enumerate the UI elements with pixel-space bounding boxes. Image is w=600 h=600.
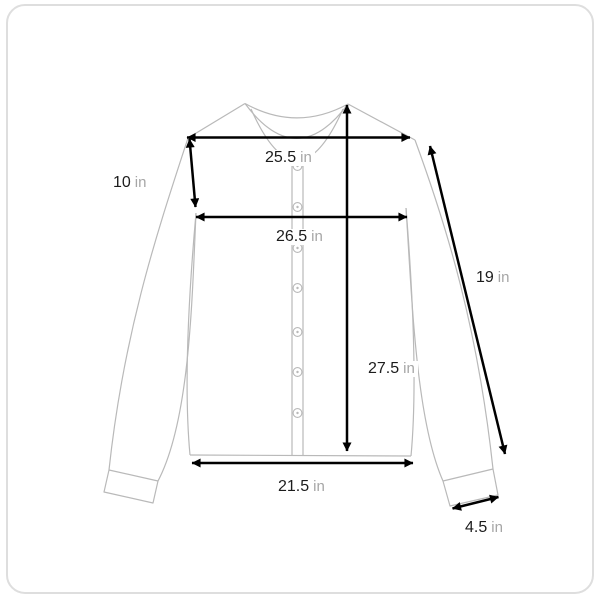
measurement-unit: in: [491, 519, 503, 536]
measurement-unit: in: [313, 478, 325, 495]
measurement-label-sleeve-length: 19in: [473, 270, 512, 286]
arrow-cuff-width: [453, 497, 499, 509]
measurement-unit: in: [311, 228, 323, 245]
garment-diagram: [0, 0, 600, 600]
button-dot: [296, 331, 298, 333]
back-neck-curve: [245, 104, 348, 118]
button-dot: [296, 247, 298, 249]
measurement-label-shoulder-width: 25.5in: [262, 150, 315, 166]
button-dot: [296, 412, 298, 414]
measurement-value: 21.5: [278, 478, 309, 495]
measurement-label-cuff-width: 4.5in: [462, 520, 506, 536]
left-cuff-band: [104, 470, 158, 503]
measurement-value: 26.5: [276, 228, 307, 245]
measurement-unit: in: [498, 269, 510, 286]
measurement-diagram-page: 25.5in 10in 26.5in 19in 27.5in 21.5in 4.…: [0, 0, 600, 600]
left-shoulder-seam: [188, 104, 245, 139]
right-shoulder-seam: [348, 104, 415, 140]
measurement-unit: in: [135, 174, 147, 191]
measurement-value: 4.5: [465, 519, 487, 536]
right-body-edge: [406, 208, 414, 456]
left-sleeve-inner-edge: [158, 213, 196, 481]
button-dot: [296, 287, 298, 289]
measurement-arrows: [187, 105, 505, 509]
button-dot: [296, 371, 298, 373]
button-dot: [296, 206, 298, 208]
measurement-unit: in: [403, 360, 415, 377]
right-sleeve-inner-edge: [406, 208, 443, 481]
button-placket: [293, 162, 302, 418]
measurement-label-armhole-depth: 10in: [110, 175, 149, 191]
measurement-value: 27.5: [368, 360, 399, 377]
measurement-unit: in: [300, 149, 312, 166]
measurement-value: 25.5: [265, 149, 296, 166]
hem-line: [190, 455, 411, 456]
right-sleeve-outer-edge: [415, 140, 493, 469]
arrow-sleeve-length: [430, 146, 505, 454]
measurement-label-body-length: 27.5in: [365, 361, 418, 377]
neckband-outer-curve: [245, 104, 348, 139]
measurement-value: 10: [113, 174, 131, 191]
measurement-label-chest-width: 26.5in: [273, 229, 326, 245]
arrow-armhole-depth: [190, 139, 196, 207]
measurement-value: 19: [476, 269, 494, 286]
frame-border: [7, 5, 593, 593]
measurement-label-hem-width: 21.5in: [275, 479, 328, 495]
